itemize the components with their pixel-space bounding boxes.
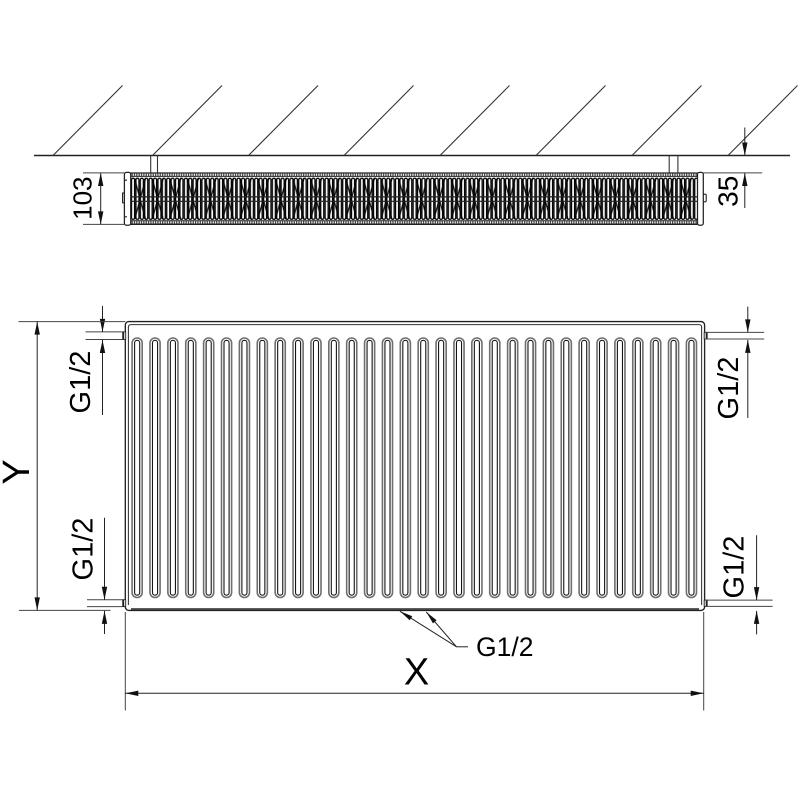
svg-text:103: 103 (68, 177, 98, 220)
svg-text:X: X (404, 652, 429, 694)
svg-text:G1/2: G1/2 (65, 351, 97, 414)
svg-text:G1/2: G1/2 (68, 518, 100, 581)
svg-text:Y: Y (0, 459, 38, 484)
svg-text:G1/2: G1/2 (713, 357, 745, 420)
svg-text:G1/2: G1/2 (719, 536, 751, 599)
svg-text:35: 35 (713, 176, 744, 207)
svg-text:G1/2: G1/2 (476, 632, 533, 662)
